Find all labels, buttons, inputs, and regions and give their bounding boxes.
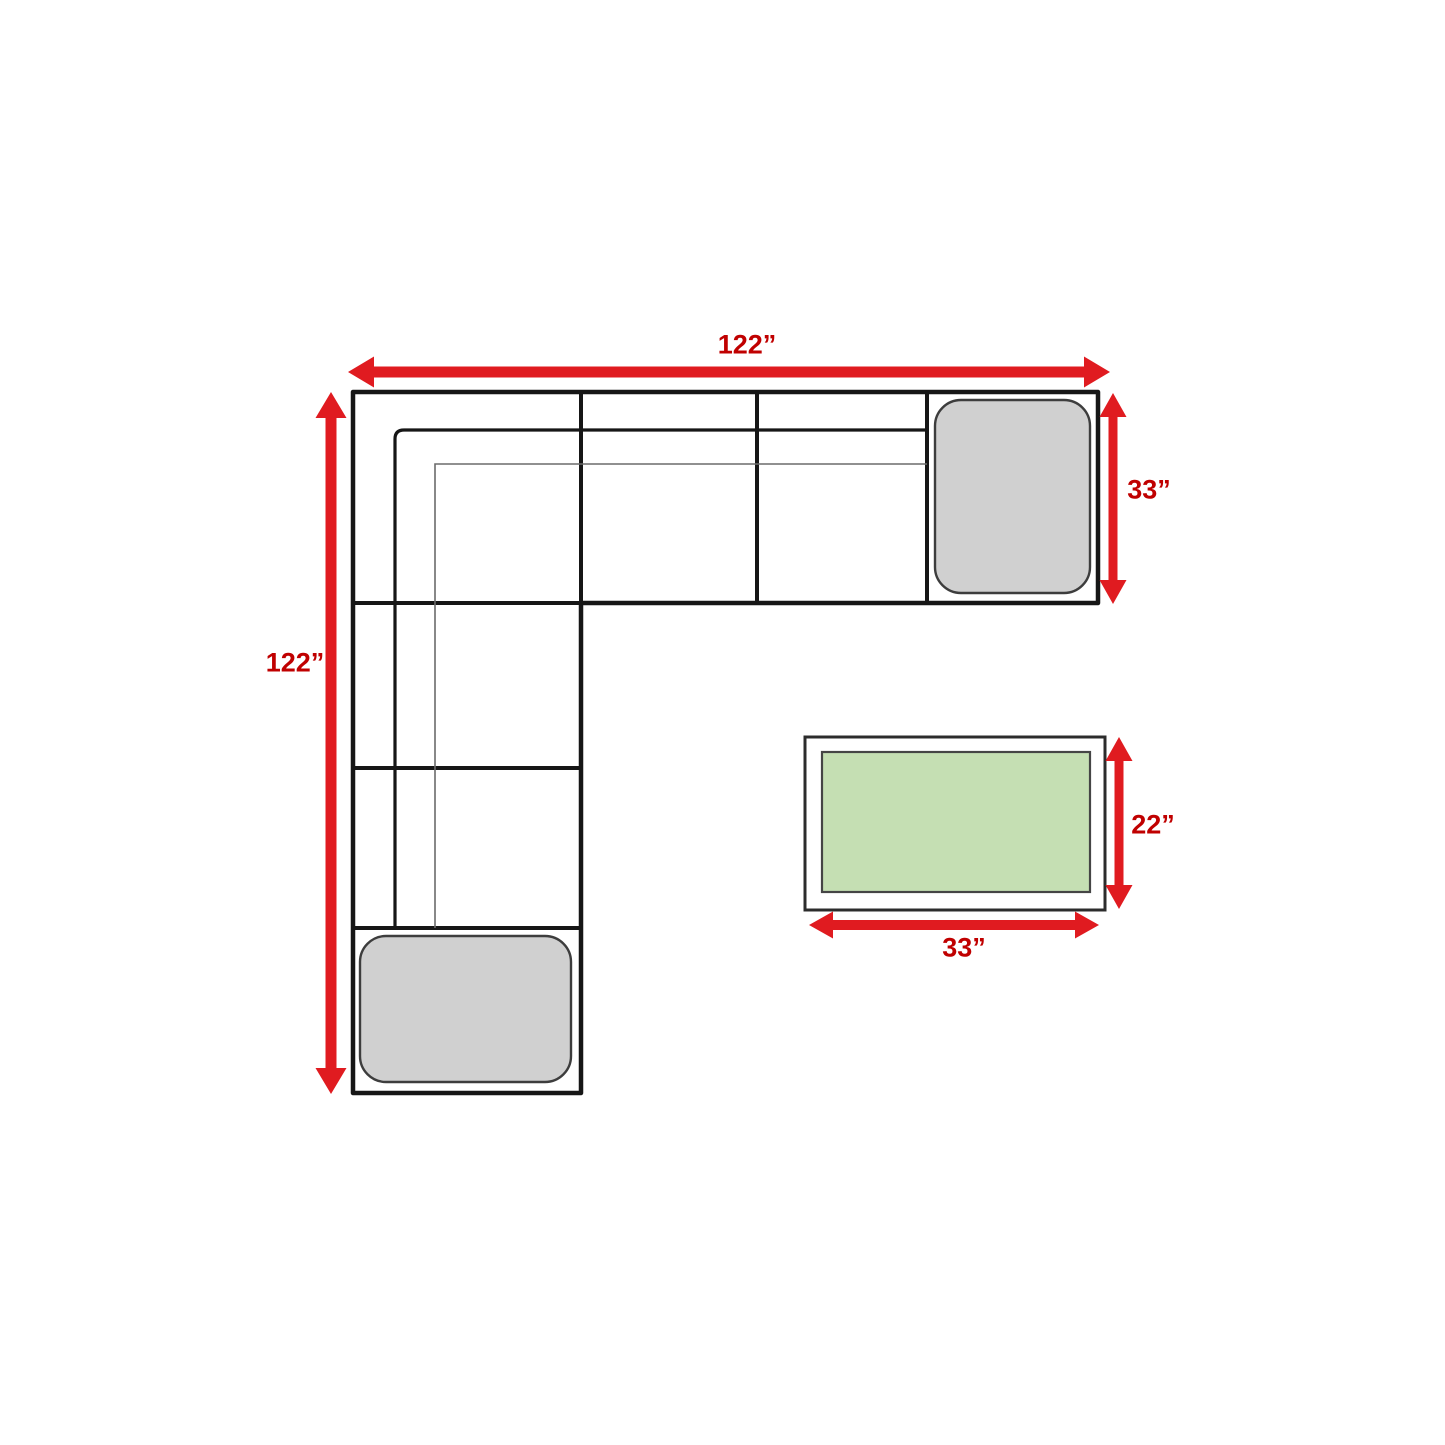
- coffee-table-top: [822, 752, 1090, 892]
- sectional-width-arrow: [348, 357, 1110, 388]
- chaise-ottoman-cushion: [360, 936, 571, 1082]
- sectional-depth-arrow: [1100, 393, 1127, 604]
- sectional-height-label: 122”: [266, 650, 325, 677]
- diagram-canvas: 122” 122” 33” 22” 33”: [0, 0, 1445, 1445]
- sectional-depth-label: 33”: [1127, 477, 1171, 504]
- sectional-width-label: 122”: [718, 332, 777, 359]
- dimension-diagram: [0, 0, 1445, 1445]
- sectional-height-arrow: [316, 392, 347, 1094]
- table-depth-arrow: [1106, 737, 1133, 909]
- table-depth-label: 22”: [1131, 812, 1175, 839]
- table-width-label: 33”: [942, 935, 986, 962]
- corner-ottoman-cushion: [935, 400, 1090, 593]
